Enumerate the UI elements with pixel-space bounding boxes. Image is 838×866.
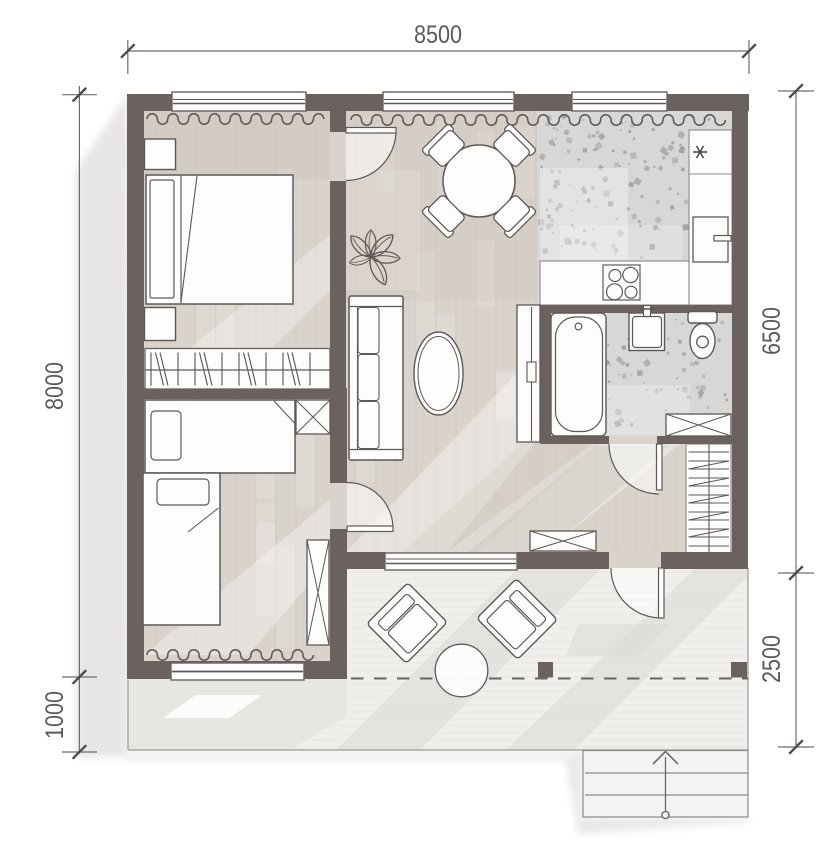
svg-text:2500: 2500	[758, 635, 786, 683]
svg-text:8500: 8500	[414, 21, 462, 49]
svg-text:8000: 8000	[41, 362, 69, 410]
svg-text:6500: 6500	[758, 307, 786, 355]
svg-text:1000: 1000	[41, 691, 69, 739]
